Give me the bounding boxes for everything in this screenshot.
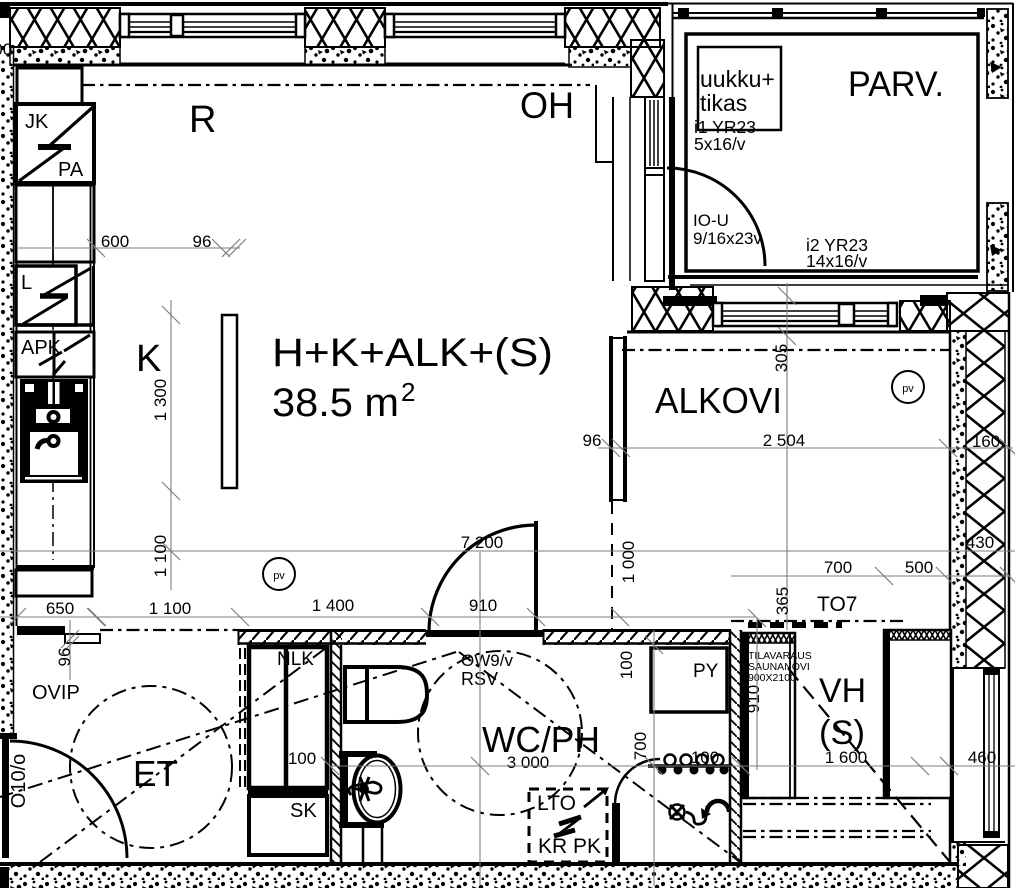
svg-text:3 000: 3 000: [507, 753, 550, 772]
svg-text:pv: pv: [273, 570, 285, 582]
svg-text:PA: PA: [58, 159, 84, 181]
svg-text:430: 430: [966, 533, 994, 552]
svg-text:tikas: tikas: [700, 90, 747, 116]
svg-text:uukku+: uukku+: [700, 66, 775, 92]
svg-text:1 100: 1 100: [149, 599, 192, 618]
svg-text:NLK: NLK: [277, 649, 314, 670]
svg-text:96: 96: [193, 232, 212, 251]
svg-text:1 300: 1 300: [151, 379, 170, 422]
svg-text:100: 100: [288, 749, 316, 768]
svg-text:SK: SK: [290, 800, 317, 822]
svg-text:2 504: 2 504: [763, 431, 806, 450]
svg-text:JK: JK: [25, 111, 49, 133]
svg-text:2: 2: [401, 377, 415, 407]
svg-text:1 100: 1 100: [151, 535, 170, 578]
svg-text:7 200: 7 200: [461, 533, 504, 552]
svg-text:700: 700: [631, 732, 650, 760]
svg-text:100: 100: [691, 748, 719, 767]
svg-text:O10/o: O10/o: [8, 754, 30, 808]
svg-text:700: 700: [824, 558, 852, 577]
svg-text:IO-U: IO-U: [693, 211, 729, 230]
svg-text:100: 100: [617, 651, 636, 679]
svg-text:KR PK: KR PK: [538, 835, 601, 858]
svg-text:R: R: [189, 99, 216, 141]
svg-text:460: 460: [968, 748, 996, 767]
svg-text:200: 200: [0, 40, 12, 59]
svg-text:VH: VH: [819, 672, 866, 710]
svg-text:TO7: TO7: [817, 593, 857, 616]
svg-text:pv: pv: [902, 383, 914, 395]
svg-text:H+K+ALK+(S): H+K+ALK+(S): [272, 331, 553, 375]
svg-text:910: 910: [744, 685, 763, 713]
svg-text:900X2100: 900X2100: [748, 672, 796, 684]
svg-text:160: 160: [972, 432, 1000, 451]
svg-text:305: 305: [772, 344, 791, 372]
svg-text:1 000: 1 000: [619, 541, 638, 584]
svg-text:500: 500: [905, 558, 933, 577]
svg-text:PY: PY: [693, 661, 719, 682]
svg-text:650: 650: [46, 599, 74, 618]
svg-text:1 600: 1 600: [825, 748, 868, 767]
svg-text:K: K: [136, 338, 161, 380]
svg-text:9/16x23v: 9/16x23v: [693, 229, 762, 248]
svg-text:L: L: [21, 272, 32, 294]
svg-text:96: 96: [583, 431, 602, 450]
svg-text:LTO: LTO: [537, 792, 576, 815]
svg-text:910: 910: [469, 596, 497, 615]
svg-text:365: 365: [773, 587, 792, 615]
svg-text:PARV.: PARV.: [848, 65, 944, 104]
svg-text:ALKOVI: ALKOVI: [655, 380, 782, 421]
svg-text:38.5 m: 38.5 m: [272, 381, 399, 425]
svg-text:1 400: 1 400: [312, 596, 355, 615]
svg-text:OVIP: OVIP: [32, 682, 80, 704]
svg-text:APK: APK: [21, 337, 62, 359]
svg-text:OH: OH: [520, 85, 574, 126]
svg-text:96: 96: [55, 648, 74, 667]
svg-text:600: 600: [101, 232, 129, 251]
svg-text:14x16/v: 14x16/v: [806, 251, 868, 271]
svg-text:5x16/v: 5x16/v: [694, 134, 746, 154]
